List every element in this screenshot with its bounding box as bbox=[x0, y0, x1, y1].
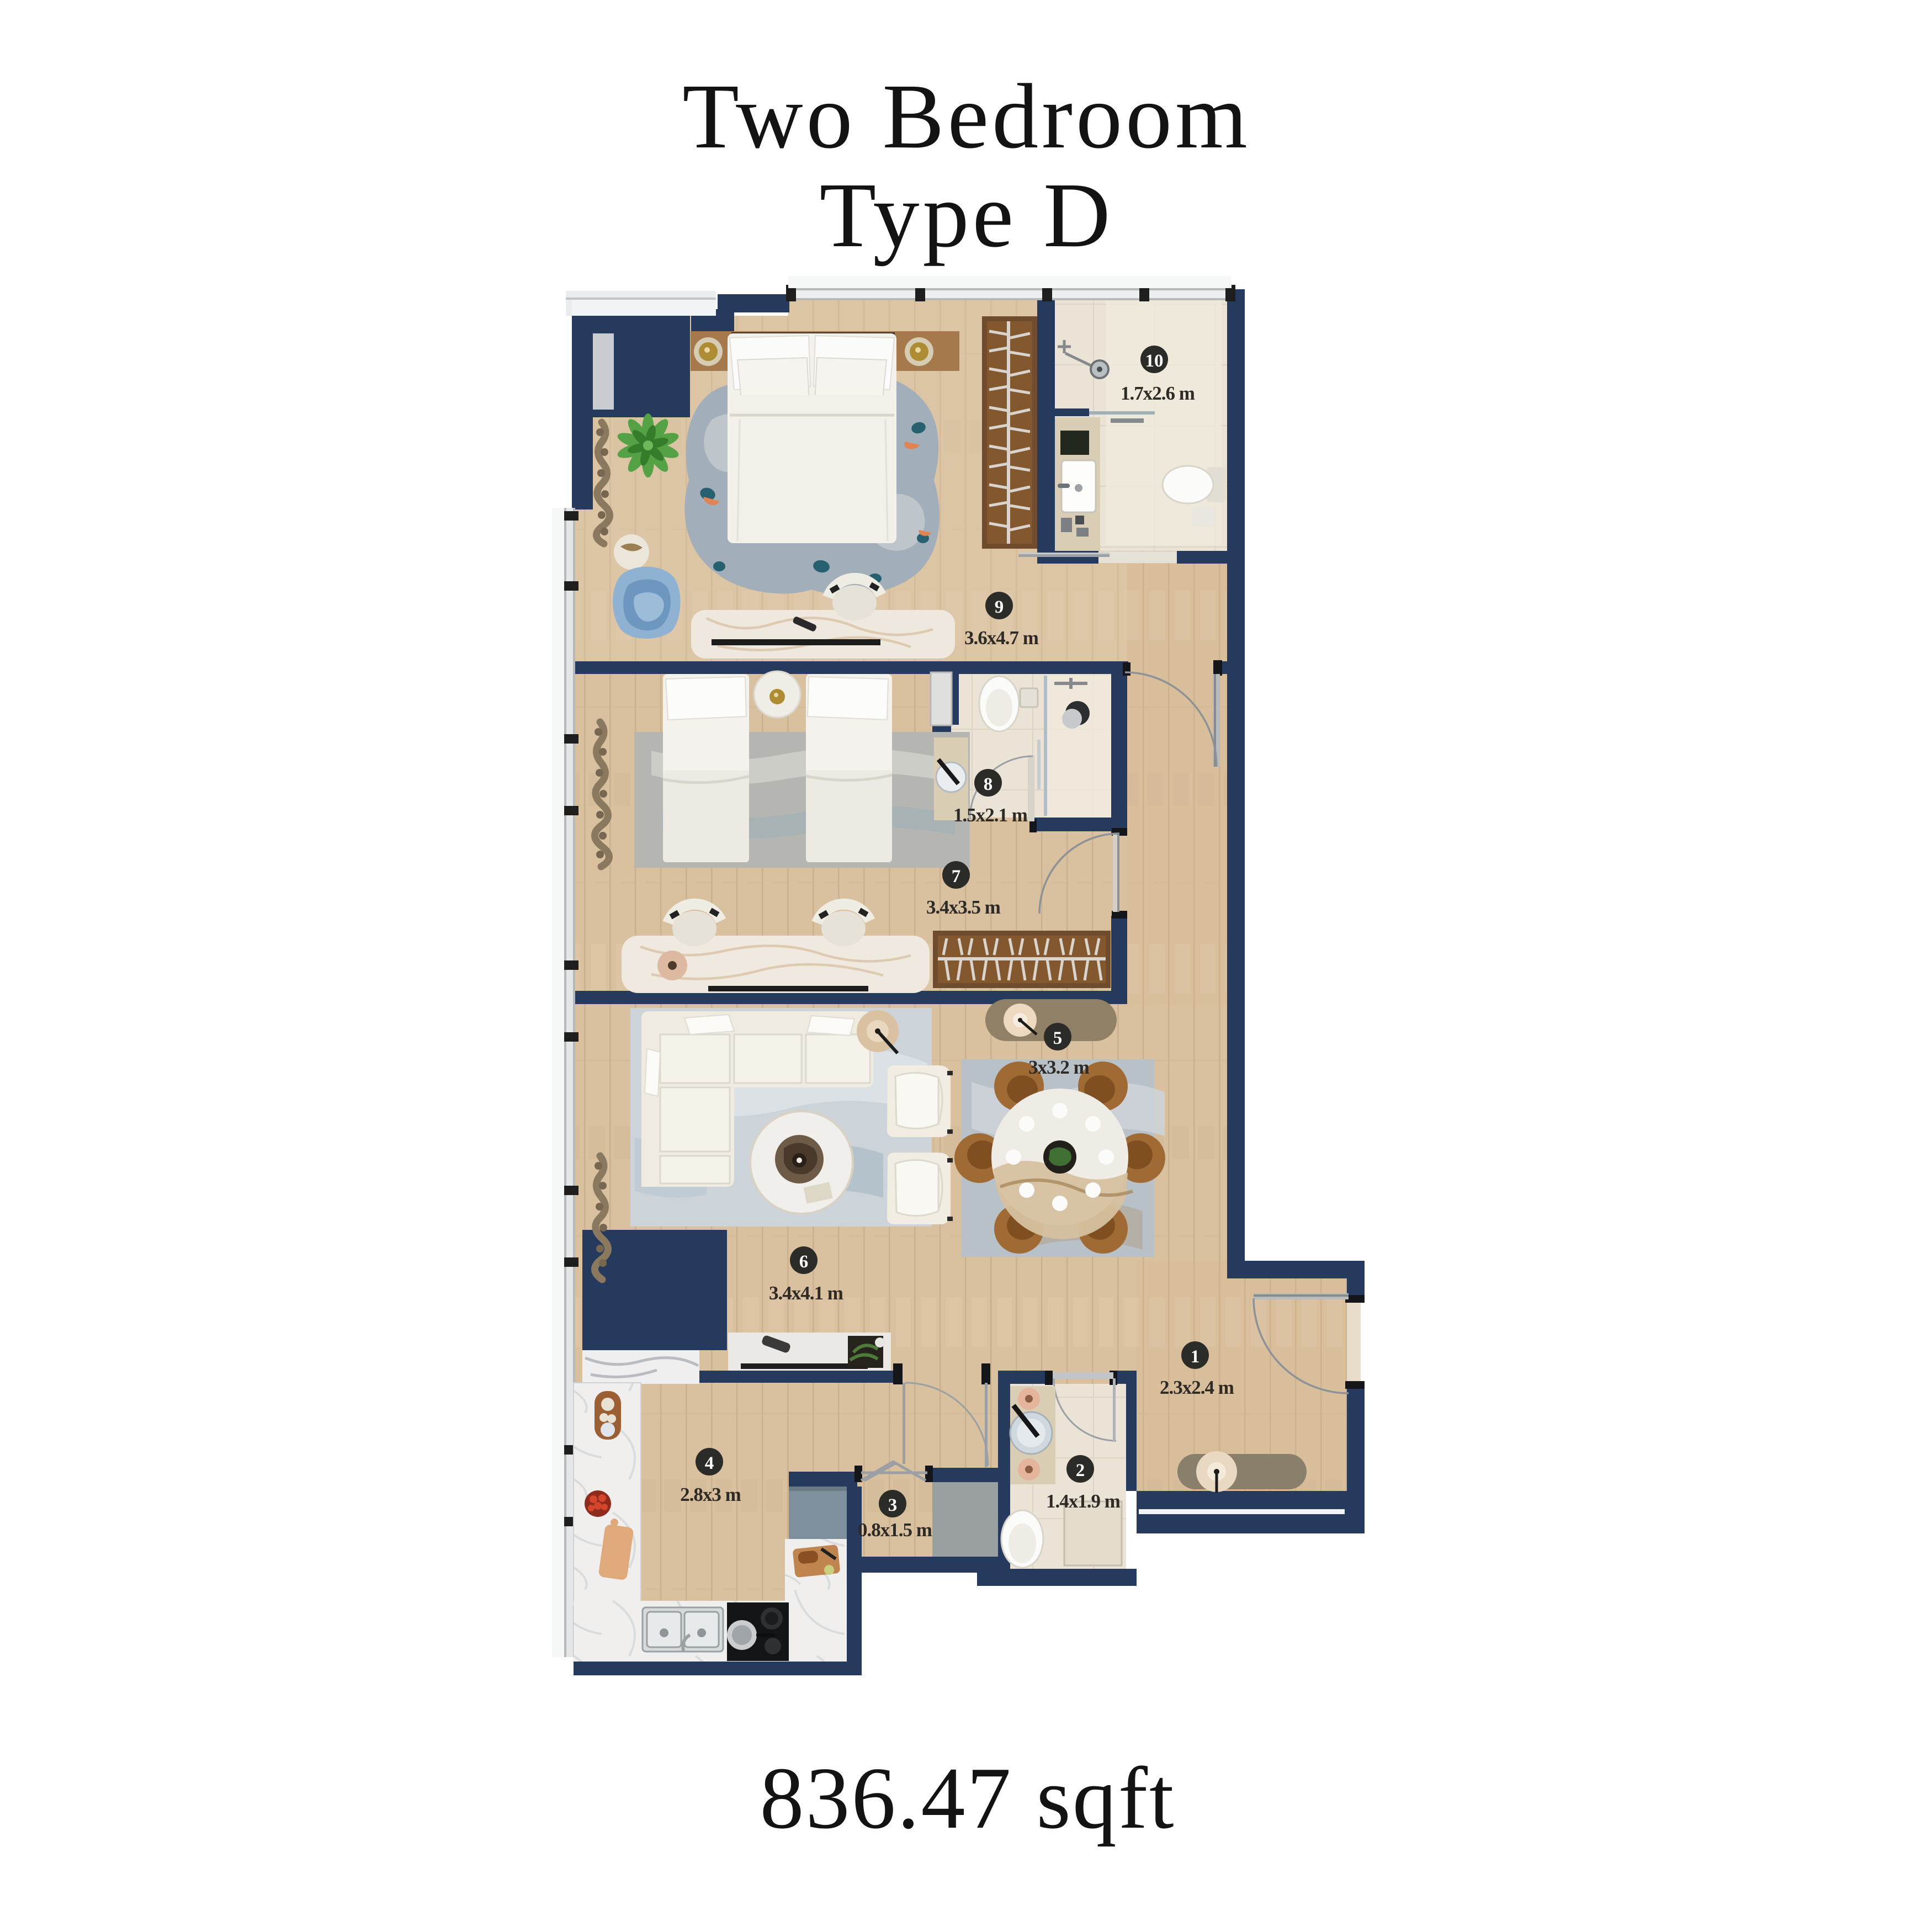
svg-text:5: 5 bbox=[1053, 1028, 1063, 1048]
svg-text:3: 3 bbox=[888, 1495, 898, 1515]
svg-text:0.8x1.5 m: 0.8x1.5 m bbox=[858, 1519, 932, 1541]
svg-text:1.7x2.6 m: 1.7x2.6 m bbox=[1121, 383, 1195, 404]
svg-text:3x3.2 m: 3x3.2 m bbox=[1028, 1057, 1090, 1078]
svg-text:3.6x4.7 m: 3.6x4.7 m bbox=[964, 627, 1039, 649]
svg-text:3.4x3.5 m: 3.4x3.5 m bbox=[926, 896, 1001, 918]
svg-text:10: 10 bbox=[1145, 351, 1164, 371]
svg-text:8: 8 bbox=[984, 774, 993, 794]
svg-text:836.47 sqft: 836.47 sqft bbox=[760, 1749, 1176, 1847]
svg-text:6: 6 bbox=[799, 1252, 809, 1272]
svg-text:7: 7 bbox=[952, 867, 961, 887]
svg-text:2: 2 bbox=[1076, 1461, 1085, 1480]
svg-text:4: 4 bbox=[705, 1453, 714, 1473]
svg-text:3.4x4.1 m: 3.4x4.1 m bbox=[769, 1282, 843, 1304]
svg-text:2.8x3 m: 2.8x3 m bbox=[680, 1484, 741, 1505]
svg-text:Two Bedroom: Two Bedroom bbox=[682, 65, 1250, 168]
svg-text:Type D: Type D bbox=[820, 164, 1114, 267]
svg-text:1.5x2.1 m: 1.5x2.1 m bbox=[953, 804, 1028, 826]
svg-text:1.4x1.9 m: 1.4x1.9 m bbox=[1046, 1490, 1121, 1512]
svg-text:2.3x2.4 m: 2.3x2.4 m bbox=[1160, 1377, 1234, 1398]
svg-text:1: 1 bbox=[1191, 1347, 1200, 1367]
svg-text:9: 9 bbox=[995, 597, 1004, 617]
